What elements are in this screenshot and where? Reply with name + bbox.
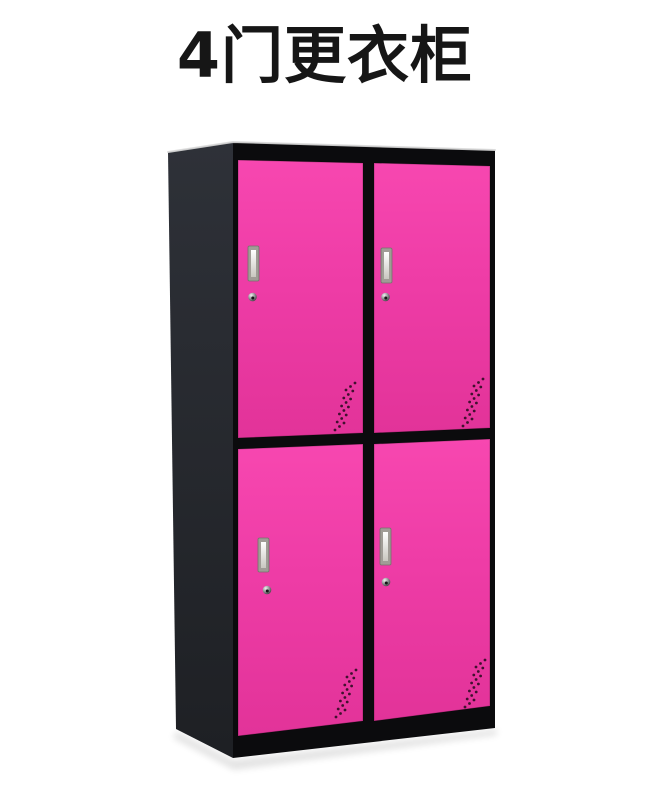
- handle-recess: [251, 250, 256, 277]
- locker-door-bottom-left: [238, 444, 363, 736]
- locker-cabinet: [168, 142, 495, 758]
- cabinet-side-panel: [168, 142, 233, 758]
- keyhole-slot: [384, 297, 387, 300]
- door-panel: [374, 439, 490, 721]
- door-panel: [238, 444, 363, 736]
- door-panel: [238, 160, 363, 438]
- keyhole-slot: [385, 582, 388, 585]
- door-handle: [258, 538, 269, 572]
- locker-door-top-right: [374, 163, 490, 433]
- door-handle: [381, 248, 392, 283]
- locker-door-bottom-right: [374, 439, 490, 721]
- locker-door-top-left: [238, 160, 363, 438]
- handle-recess: [383, 532, 388, 561]
- product-image-page: 4门更衣柜: [0, 0, 650, 790]
- handle-recess: [384, 252, 389, 279]
- door-handle: [248, 246, 259, 281]
- handle-recess: [261, 542, 266, 568]
- door-panel: [374, 163, 490, 433]
- keyhole-slot: [266, 590, 269, 593]
- locker-photo: [0, 0, 650, 790]
- keyhole-slot: [251, 297, 254, 300]
- door-handle: [380, 528, 391, 565]
